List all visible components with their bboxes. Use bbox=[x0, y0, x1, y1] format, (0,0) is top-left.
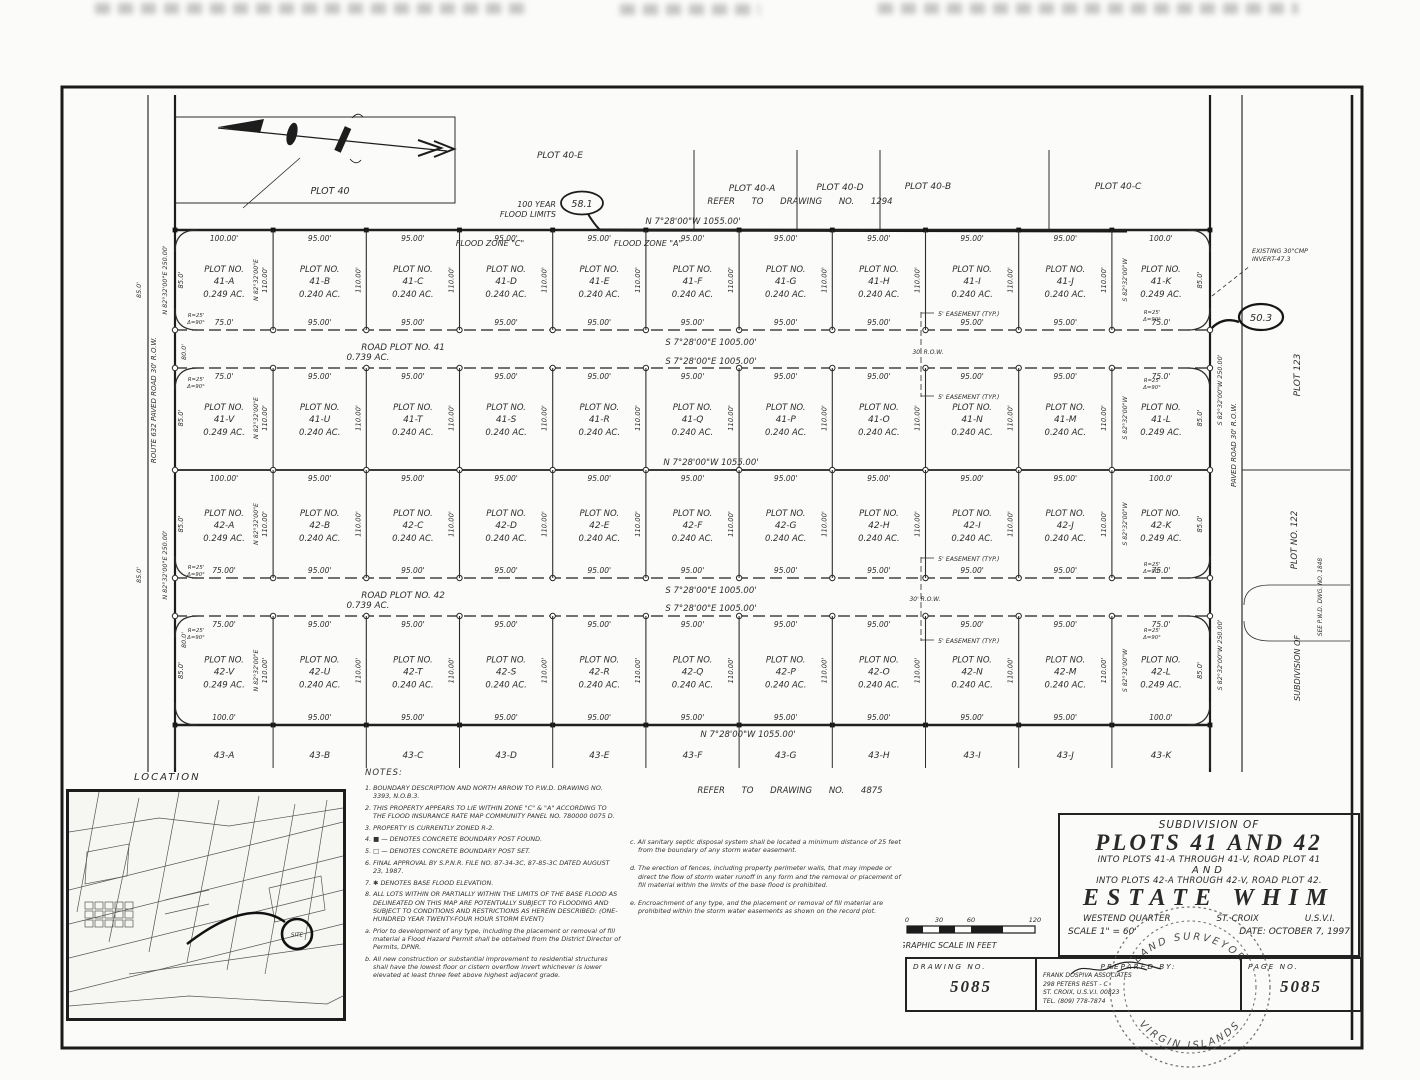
boundary-post-marker bbox=[830, 467, 835, 472]
top-dimension: 95.00' bbox=[774, 234, 798, 243]
left-bearing-1: N 82°32'00"E 250.00' bbox=[161, 245, 169, 315]
title-island: ST. CROIX bbox=[1216, 914, 1258, 924]
curve-radius-label: R=25' bbox=[188, 565, 204, 571]
plot-cell-label: PLOT NO. bbox=[673, 265, 713, 275]
boundary-post-marker bbox=[364, 613, 369, 618]
note-item: d. The erection of fences, including pro… bbox=[630, 864, 906, 889]
plot-number-41-G: 41-G bbox=[775, 277, 797, 287]
plot-number-42-N: 42-N bbox=[961, 668, 983, 678]
top-dimension: 95.00' bbox=[308, 234, 332, 243]
plot-area-41-C: 0.240 AC. bbox=[392, 290, 434, 300]
site-circle bbox=[282, 919, 312, 949]
bottom-dimension: 95.00' bbox=[774, 318, 798, 327]
street-line bbox=[165, 890, 209, 900]
bearing-label: N 82°32'00"E bbox=[252, 650, 260, 692]
easement-label-1: 5' EASEMENT (TYP.) bbox=[938, 311, 1000, 318]
plot-cell-label: PLOT NO. bbox=[673, 509, 713, 519]
curve-delta-label: Δ=90° bbox=[186, 635, 205, 641]
flood-elevation-value: 58.1 bbox=[571, 199, 592, 210]
plot-area-41-O: 0.240 AC. bbox=[858, 428, 900, 438]
top-dimension: 95.00' bbox=[1054, 234, 1078, 243]
plot-cell-label: PLOT NO. bbox=[673, 656, 713, 666]
side-dimension: 110.00' bbox=[354, 267, 362, 293]
plot-number-41-V: 41-V bbox=[214, 415, 235, 425]
boundary-post-marker bbox=[1109, 723, 1114, 728]
boundary-post-marker bbox=[923, 575, 928, 580]
note-item: 8. ALL LOTS WITHIN OR PARTIALLY WITHIN T… bbox=[365, 890, 621, 923]
plot-area-41-K: 0.249 AC. bbox=[1140, 290, 1182, 300]
side-dimension: 110.00' bbox=[634, 658, 642, 684]
bearing-label: S 82°32'00"W bbox=[1121, 395, 1129, 439]
easement-label-2: 5' EASEMENT (TYP.) bbox=[938, 394, 1000, 401]
plot-cell-label: PLOT NO. bbox=[859, 656, 899, 666]
note-item: b. All new construction or substantial i… bbox=[365, 955, 621, 980]
boundary-post-marker bbox=[1109, 613, 1114, 618]
boundary-post-marker bbox=[173, 228, 178, 233]
top-dimension: 95.00' bbox=[401, 620, 425, 629]
boundary-post-marker bbox=[1208, 228, 1213, 233]
plot-cell-label: PLOT NO. bbox=[952, 509, 992, 519]
city-block bbox=[95, 920, 103, 927]
bearing-label: S 82°32'00"W bbox=[1121, 648, 1129, 692]
title-plots-41-42: PLOTS 41 AND 42 bbox=[1060, 831, 1358, 855]
mid-bearing: N 7°28'00"W 1055.00' bbox=[663, 458, 758, 468]
bottom-dimension: 95.00' bbox=[960, 566, 984, 575]
road42-row-label: 30' R.O.W. bbox=[909, 596, 940, 603]
side-dimension: 110.00' bbox=[541, 658, 549, 684]
graphic-scale: 0 30 60 120 GRAPHIC SCALE IN FEET bbox=[903, 912, 1053, 960]
boundary-post-marker bbox=[457, 723, 462, 728]
bottom-dimension: 95.00' bbox=[1054, 713, 1078, 722]
boundary-post-marker bbox=[172, 327, 177, 332]
plot-area-42-E: 0.240 AC. bbox=[579, 534, 621, 544]
flood-leader-2 bbox=[1210, 320, 1239, 330]
side-dimension: 110.00' bbox=[261, 658, 269, 684]
plot-area-42-T: 0.240 AC. bbox=[392, 681, 434, 691]
side-dimension: 110.00' bbox=[541, 405, 549, 431]
plot-number-41-N: 41-N bbox=[961, 415, 983, 425]
plot-cell-label: PLOT NO. bbox=[952, 656, 992, 666]
plot-number-41-H: 41-H bbox=[868, 277, 890, 287]
title-and: AND bbox=[1060, 865, 1358, 876]
plot-number-41-F: 41-F bbox=[683, 277, 704, 287]
top-dimension: 95.00' bbox=[1054, 620, 1078, 629]
bottom-dimension: 95.00' bbox=[588, 566, 612, 575]
side-dimension: 110.00' bbox=[448, 405, 456, 431]
street-line bbox=[69, 996, 343, 1006]
street-line bbox=[149, 792, 179, 952]
edge-dimension: 85.0' bbox=[177, 271, 185, 288]
boundary-post-marker bbox=[1109, 327, 1114, 332]
bearing-label: S 82°32'00"W bbox=[1121, 257, 1129, 301]
location-map-title: LOCATION bbox=[134, 772, 201, 783]
city-block bbox=[85, 902, 93, 909]
top-dimension: 75.00' bbox=[212, 620, 236, 629]
bottom-dimension: 95.00' bbox=[401, 318, 425, 327]
plot-area-41-S: 0.240 AC. bbox=[485, 428, 527, 438]
plot-area-42-S: 0.240 AC. bbox=[485, 681, 527, 691]
street-line bbox=[165, 904, 209, 914]
flood-limit-heavy-line bbox=[600, 230, 1127, 231]
top-dimension: 95.00' bbox=[308, 620, 332, 629]
plot40e-label: PLOT 40-E bbox=[537, 151, 583, 161]
plot-number-42-H: 42-H bbox=[868, 521, 890, 531]
existing-cmp-label-1: EXISTING 30"CMP bbox=[1252, 248, 1308, 255]
corner-fillet bbox=[1188, 308, 1210, 330]
bottom-dimension: 95.00' bbox=[960, 318, 984, 327]
adjacent-plot-label-43-J: 43-J bbox=[1057, 751, 1075, 761]
flood-limits-label-1: 100 YEAR bbox=[517, 200, 556, 209]
top-dimension: 95.00' bbox=[494, 474, 518, 483]
boundary-post-marker bbox=[271, 723, 276, 728]
prepared-by-cell: PREPARED BY: FRANK DOSPIVA ASSOCIATES 29… bbox=[1037, 959, 1242, 1010]
boundary-post-marker bbox=[923, 723, 928, 728]
street-line bbox=[109, 798, 139, 942]
city-block bbox=[105, 911, 113, 918]
boundary-post-marker bbox=[830, 723, 835, 728]
plot-cell-label: PLOT NO. bbox=[300, 656, 340, 666]
side-dimension: 110.00' bbox=[634, 267, 642, 293]
side-dimension: 110.00' bbox=[913, 511, 921, 537]
plot-area-42-F: 0.240 AC. bbox=[672, 534, 714, 544]
side-dimension: 110.00' bbox=[1100, 267, 1108, 293]
plot-number-41-M: 41-M bbox=[1054, 415, 1077, 425]
side-dimension: 110.00' bbox=[354, 658, 362, 684]
corner-fillet bbox=[175, 368, 197, 390]
firm-addr-2: ST. CROIX, U.S.V.I. 00823 bbox=[1037, 989, 1240, 997]
boundary-post-marker bbox=[1207, 575, 1212, 580]
boundary-post-marker bbox=[830, 365, 835, 370]
plot-area-41-F: 0.240 AC. bbox=[672, 290, 714, 300]
side-dimension: 110.00' bbox=[261, 405, 269, 431]
plot-number-42-T: 42-T bbox=[403, 668, 424, 678]
firm-addr-1: 298 PETERS REST - C bbox=[1037, 981, 1240, 989]
plot-cell-label: PLOT NO. bbox=[766, 656, 806, 666]
top-dimension: 75.0' bbox=[1152, 372, 1171, 381]
plot-cell-label: PLOT NO. bbox=[952, 403, 992, 413]
curve-delta-label: Δ=90° bbox=[1142, 569, 1161, 575]
plot-cell-label: PLOT NO. bbox=[204, 403, 244, 413]
plot40b-label: PLOT 40-B bbox=[905, 182, 951, 192]
title-estate-whim: ESTATE WHIM bbox=[1060, 886, 1358, 911]
boundary-post-marker bbox=[830, 613, 835, 618]
drawing-no-cell: DRAWING NO. 5085 bbox=[907, 959, 1037, 1010]
plot-cell-label: PLOT NO. bbox=[1141, 509, 1181, 519]
top-dimension: 95.00' bbox=[588, 620, 612, 629]
top-dimension: 95.00' bbox=[867, 372, 891, 381]
plot-area-42-M: 0.240 AC. bbox=[1045, 681, 1087, 691]
plot-number-42-V: 42-V bbox=[214, 668, 235, 678]
plot-cell-label: PLOT NO. bbox=[1045, 656, 1085, 666]
road41-row-label: 30' R.O.W. bbox=[912, 349, 943, 356]
top-dimension: 95.00' bbox=[494, 372, 518, 381]
top-dimension: 95.00' bbox=[867, 234, 891, 243]
top-dimension: 95.00' bbox=[588, 474, 612, 483]
see-dwg-label: SEE P.W.D. DWG. NO. 1848 bbox=[1318, 558, 1324, 636]
boundary-post-marker bbox=[736, 365, 741, 370]
boundary-post-marker bbox=[1207, 613, 1212, 618]
curve-radius-label: R=25' bbox=[1144, 628, 1160, 634]
flood-leader bbox=[588, 214, 600, 230]
top-dimension: 95.00' bbox=[681, 234, 705, 243]
plot-area-41-V: 0.249 AC. bbox=[203, 428, 245, 438]
plot-cell-label: PLOT NO. bbox=[1045, 403, 1085, 413]
title-scale: SCALE 1" = 60' bbox=[1068, 927, 1137, 937]
corner-fillet bbox=[175, 556, 197, 578]
boundary-post-marker bbox=[550, 575, 555, 580]
page-no-value: 5085 bbox=[1242, 977, 1360, 997]
top-dimension: 95.00' bbox=[308, 372, 332, 381]
side-dimension: 110.00' bbox=[448, 267, 456, 293]
bearing-label: N 82°32'00"E bbox=[252, 397, 260, 439]
corner-fillet bbox=[175, 703, 197, 725]
page-no-cell: PAGE NO. 5085 bbox=[1242, 959, 1360, 1010]
cmp-leader bbox=[1212, 266, 1250, 296]
boundary-post-marker bbox=[270, 467, 275, 472]
bottom-dimension: 95.00' bbox=[774, 566, 798, 575]
notes-right-column: c. All sanitary septic disposal system s… bbox=[630, 838, 906, 925]
note-item: c. All sanitary septic disposal system s… bbox=[630, 838, 906, 854]
site-label: SITE bbox=[291, 933, 304, 939]
plot-area-41-G: 0.240 AC. bbox=[765, 290, 807, 300]
boundary-post-marker bbox=[172, 467, 177, 472]
boundary-post-marker bbox=[643, 575, 648, 580]
boundary-post-marker bbox=[364, 723, 369, 728]
curve-radius-label: R=25' bbox=[1144, 562, 1160, 568]
edge-dimension: 85.0' bbox=[1196, 409, 1204, 426]
side-dimension: 110.00' bbox=[448, 658, 456, 684]
top-dimension: 100.00' bbox=[210, 234, 238, 243]
plot-cell-label: PLOT NO. bbox=[300, 403, 340, 413]
plot-number-41-B: 41-B bbox=[309, 277, 330, 287]
street-line bbox=[265, 804, 295, 974]
bottom-dimension: 95.00' bbox=[774, 713, 798, 722]
curve-delta-label: Δ=90° bbox=[186, 320, 205, 326]
top-dimension: 75.0' bbox=[1152, 620, 1171, 629]
plot-area-42-J: 0.240 AC. bbox=[1045, 534, 1087, 544]
boundary-post-marker bbox=[457, 327, 462, 332]
plot40d-label: PLOT 40-D bbox=[816, 183, 863, 193]
bottom-dimension: 95.00' bbox=[681, 713, 705, 722]
city-block bbox=[85, 920, 93, 927]
top-dimension: 100.0' bbox=[1149, 234, 1173, 243]
bottom-dimension: 95.00' bbox=[308, 566, 332, 575]
scale-caption: GRAPHIC SCALE IN FEET bbox=[903, 941, 998, 950]
boundary-post-marker bbox=[1016, 365, 1021, 370]
plot-area-42-G: 0.240 AC. bbox=[765, 534, 807, 544]
plot40-outline bbox=[175, 117, 455, 203]
plot-number-41-D: 41-D bbox=[495, 277, 517, 287]
boundary-post-marker bbox=[736, 327, 741, 332]
side-dimension: 110.00' bbox=[820, 511, 828, 537]
road41-name: ROAD PLOT NO. 41 bbox=[361, 343, 445, 353]
corner-fillet bbox=[175, 230, 197, 252]
bottom-dimension: 95.00' bbox=[308, 713, 332, 722]
drawing-info-strip: DRAWING NO. 5085 PREPARED BY: FRANK DOSP… bbox=[905, 957, 1362, 1012]
side-dimension: 110.00' bbox=[634, 405, 642, 431]
plot-number-42-I: 42-I bbox=[963, 521, 981, 531]
left-bearing-2: N 82°32'00"E 250.00' bbox=[161, 530, 169, 600]
top-dimension: 95.00' bbox=[774, 474, 798, 483]
adjacent-plot-label-43-I: 43-I bbox=[963, 751, 981, 761]
existing-cmp-label-2: INVERT-47.3 bbox=[1252, 256, 1290, 263]
boundary-post-marker bbox=[923, 365, 928, 370]
city-block bbox=[115, 920, 123, 927]
side-dimension: 110.00' bbox=[727, 658, 735, 684]
boundary-post-marker bbox=[550, 228, 555, 233]
plot-cell-label: PLOT NO. bbox=[300, 509, 340, 519]
boundary-post-marker bbox=[1016, 228, 1021, 233]
boundary-post-marker bbox=[172, 613, 177, 618]
plot-number-41-K: 41-K bbox=[1151, 277, 1173, 287]
plot-cell-label: PLOT NO. bbox=[393, 509, 433, 519]
note-item: 3. PROPERTY IS CURRENTLY ZONED R-2. bbox=[365, 824, 621, 832]
plot-number-42-C: 42-C bbox=[402, 521, 424, 531]
easement-leader bbox=[921, 313, 934, 640]
street-line bbox=[69, 924, 343, 992]
plot-area-41-I: 0.240 AC. bbox=[951, 290, 993, 300]
city-block bbox=[95, 911, 103, 918]
subdivision-of-label: SUBDIVISION OF bbox=[1293, 635, 1302, 701]
street-line bbox=[227, 796, 259, 970]
curve-delta-label: Δ=90° bbox=[1142, 317, 1161, 323]
boundary-post-marker bbox=[550, 613, 555, 618]
boundary-post-marker bbox=[457, 228, 462, 233]
bottom-dimension: 95.00' bbox=[494, 318, 518, 327]
plot-number-41-O: 41-O bbox=[868, 415, 890, 425]
boundary-post-marker bbox=[550, 723, 555, 728]
scale-tick-30: 30 bbox=[935, 916, 943, 924]
edge-dimension: 85.0' bbox=[1196, 662, 1204, 679]
bottom-dimension: 75.00' bbox=[212, 566, 236, 575]
corner-fillet bbox=[1188, 703, 1210, 725]
plot-number-42-K: 42-K bbox=[1151, 521, 1173, 531]
boundary-post-marker bbox=[830, 228, 835, 233]
corner-fillet bbox=[175, 616, 197, 638]
boundary-post-marker bbox=[923, 613, 928, 618]
plot-number-42-D: 42-D bbox=[495, 521, 517, 531]
bottom-dimension: 95.00' bbox=[681, 318, 705, 327]
corner-fillet bbox=[1188, 556, 1210, 578]
plot-cell-label: PLOT NO. bbox=[1141, 656, 1181, 666]
boundary-post-marker bbox=[457, 365, 462, 370]
corner-fillet bbox=[175, 308, 197, 330]
boundary-post-marker bbox=[1016, 575, 1021, 580]
boundary-post-marker bbox=[457, 467, 462, 472]
top-dimension: 95.00' bbox=[960, 234, 984, 243]
boundary-post-marker bbox=[550, 327, 555, 332]
plot-number-42-G: 42-G bbox=[775, 521, 797, 531]
plot-cell-label: PLOT NO. bbox=[1045, 509, 1085, 519]
bearing-label: N 82°32'00"E bbox=[252, 259, 260, 301]
plot-cell-label: PLOT NO. bbox=[952, 265, 992, 275]
easement-label-3: 5' EASEMENT (TYP.) bbox=[938, 556, 1000, 563]
plot-number-41-E: 41-E bbox=[589, 277, 610, 287]
street-line bbox=[77, 792, 99, 912]
side-dimension: 110.00' bbox=[261, 267, 269, 293]
top-dimension: 95.00' bbox=[960, 372, 984, 381]
adjacent-plot-label-43-F: 43-F bbox=[683, 751, 704, 761]
left-gap-dim-1: 80.0' bbox=[180, 344, 188, 360]
plot-number-41-Q: 41-Q bbox=[682, 415, 704, 425]
boundary-post-marker bbox=[1208, 723, 1213, 728]
top-dimension: 95.00' bbox=[308, 474, 332, 483]
plot123-label: PLOT 123 bbox=[1293, 353, 1303, 396]
bottom-dimension: 75.0' bbox=[1152, 318, 1171, 327]
plot-area-41-U: 0.240 AC. bbox=[299, 428, 341, 438]
road42-bearing-1: S 7°28'00"E 1005.00' bbox=[665, 586, 756, 596]
adjacent-plot-label-43-A: 43-A bbox=[214, 751, 235, 761]
bottom-dimension: 75.0' bbox=[215, 318, 234, 327]
side-dimension: 110.00' bbox=[1007, 405, 1015, 431]
plot-number-42-P: 42-P bbox=[776, 668, 797, 678]
refer-1294-label: REFER TO DRAWING NO. 1294 bbox=[707, 197, 892, 207]
street-line bbox=[85, 844, 129, 884]
note-item: 7. ✱ DENOTES BASE FLOOD ELEVATION. bbox=[365, 879, 621, 887]
signature bbox=[1067, 960, 1177, 978]
corner-fillet bbox=[1188, 368, 1210, 390]
plot-number-41-L: 41-L bbox=[1151, 415, 1171, 425]
title-locale-row: WESTEND QUARTER ST. CROIX U.S.V.I. bbox=[1060, 914, 1358, 924]
bottom-dimension: 100.0' bbox=[212, 713, 236, 722]
top-dimension: 95.00' bbox=[960, 474, 984, 483]
left-outer-dim-1: 85.0' bbox=[135, 282, 143, 298]
bottom-dimension: 95.00' bbox=[681, 566, 705, 575]
city-block bbox=[115, 902, 123, 909]
boundary-post-marker bbox=[923, 327, 928, 332]
notes-header: NOTES: bbox=[365, 768, 621, 778]
bottom-dimension: 95.00' bbox=[1054, 566, 1078, 575]
plot-cell-label: PLOT NO. bbox=[1141, 403, 1181, 413]
right-bearing-1: S 82°32'00"W 250.00' bbox=[1216, 354, 1224, 425]
plot-area-41-E: 0.240 AC. bbox=[579, 290, 621, 300]
plot-number-42-O: 42-O bbox=[868, 668, 890, 678]
boundary-post-marker bbox=[550, 365, 555, 370]
street-line bbox=[129, 944, 343, 974]
note-item: 1. BOUNDARY DESCRIPTION AND NORTH ARROW … bbox=[365, 784, 621, 800]
title-block: SUBDIVISION OF PLOTS 41 AND 42 INTO PLOT… bbox=[1058, 813, 1360, 957]
boundary-post-marker bbox=[364, 228, 369, 233]
plot-area-42-C: 0.240 AC. bbox=[392, 534, 434, 544]
plot-cell-label: PLOT NO. bbox=[486, 656, 526, 666]
north-bearing-top: N 7°28'00"W 1055.00' bbox=[645, 217, 740, 227]
adjacent-plot-label-43-H: 43-H bbox=[868, 751, 890, 761]
note-item: 2. THIS PROPERTY APPEARS TO LIE WITHIN Z… bbox=[365, 804, 621, 820]
city-block bbox=[125, 902, 133, 909]
edge-dimension: 85.0' bbox=[177, 515, 185, 532]
plot-cell-label: PLOT NO. bbox=[486, 509, 526, 519]
boundary-post-marker bbox=[172, 575, 177, 580]
plot-cell-label: PLOT NO. bbox=[393, 656, 433, 666]
scan-smudge bbox=[878, 3, 1298, 14]
plot-cell-label: PLOT NO. bbox=[204, 656, 244, 666]
side-dimension: 110.00' bbox=[1007, 267, 1015, 293]
plot-number-42-A: 42-A bbox=[214, 521, 235, 531]
boundary-post-marker bbox=[173, 723, 178, 728]
plot-number-42-L: 42-L bbox=[1151, 668, 1171, 678]
bottom-dimension: 95.00' bbox=[494, 566, 518, 575]
top-dimension: 95.00' bbox=[867, 620, 891, 629]
boundary-post-marker bbox=[830, 327, 835, 332]
plot-cell-label: PLOT NO. bbox=[393, 265, 433, 275]
plot-area-41-N: 0.240 AC. bbox=[951, 428, 993, 438]
plot-area-41-P: 0.240 AC. bbox=[765, 428, 807, 438]
plot-number-41-C: 41-C bbox=[402, 277, 424, 287]
drawing-no-label: DRAWING NO. bbox=[907, 959, 1035, 971]
boundary-post-marker bbox=[364, 365, 369, 370]
plot-number-42-J: 42-J bbox=[1057, 521, 1075, 531]
flood-elevation-oval-2 bbox=[1239, 304, 1283, 330]
